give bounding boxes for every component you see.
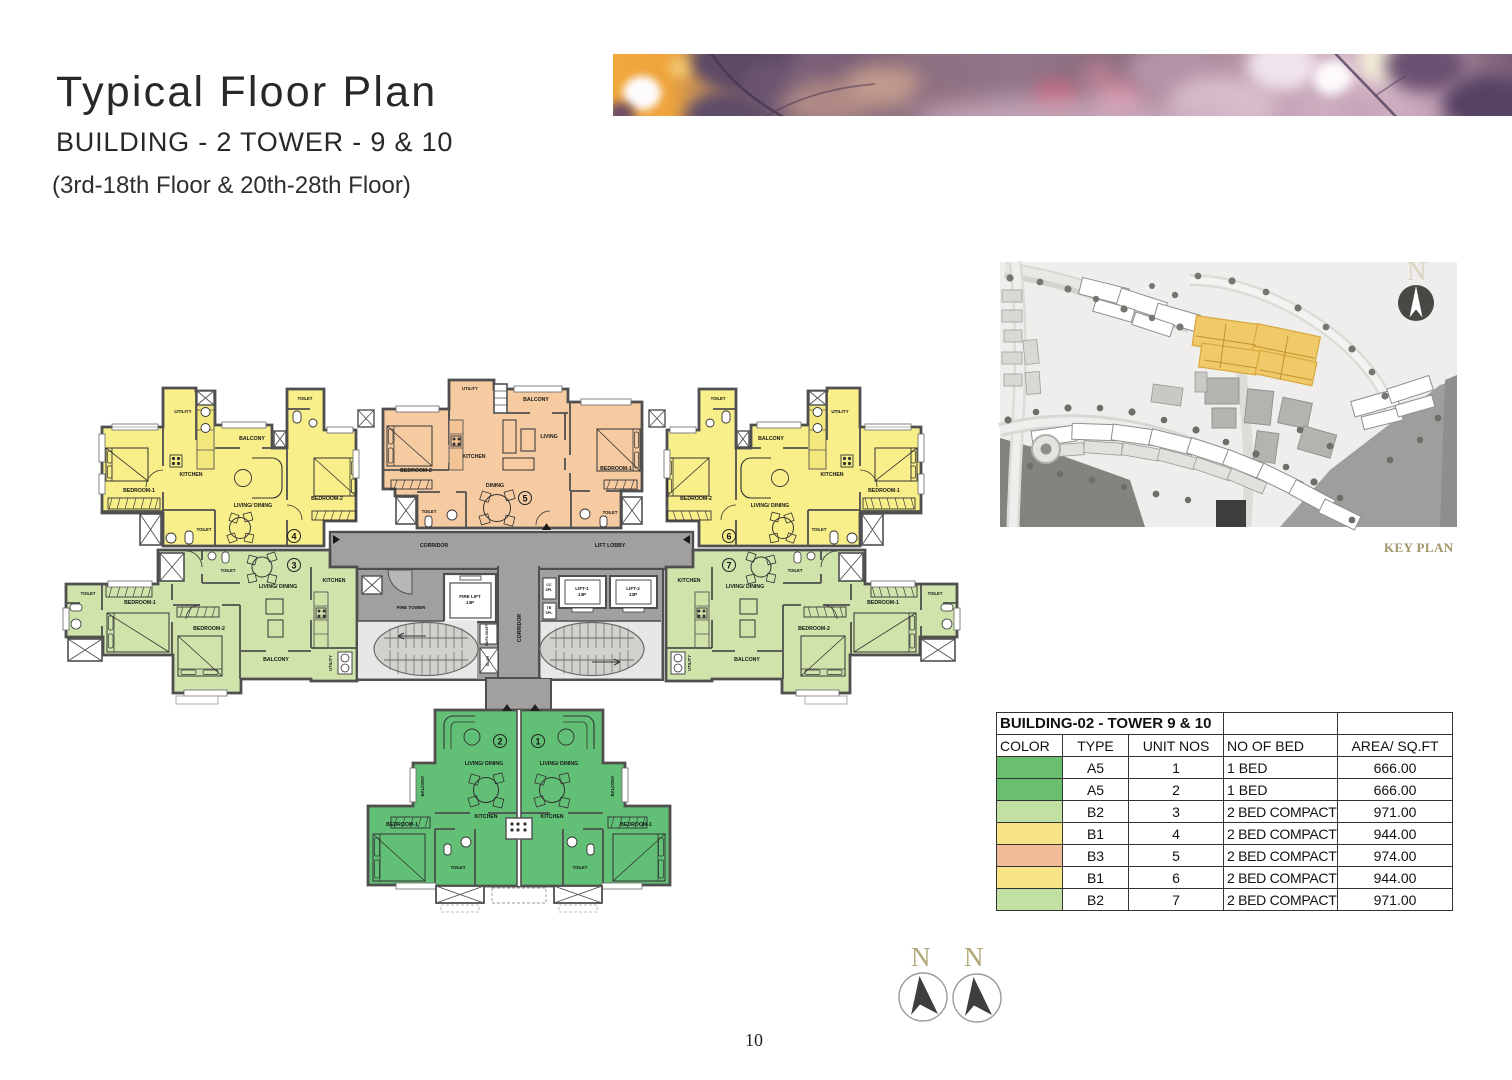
svg-text:KITCHEN: KITCHEN [322, 578, 345, 584]
svg-text:TOILET: TOILET [221, 568, 236, 573]
svg-text:BALCONY: BALCONY [734, 657, 760, 663]
svg-text:N: N [964, 942, 984, 972]
svg-text:7: 7 [726, 561, 731, 571]
svg-text:4: 4 [291, 532, 296, 542]
svg-text:CC: CC [546, 583, 552, 587]
svg-text:BEDROOM-1: BEDROOM-1 [386, 822, 418, 828]
svg-text:LIVING/ DINING: LIVING/ DINING [259, 584, 297, 590]
svg-text:KITCHEN: KITCHEN [820, 472, 843, 478]
svg-text:TOILET: TOILET [81, 591, 96, 596]
svg-text:BEDROOM-2: BEDROOM-2 [798, 626, 830, 632]
svg-text:TB: TB [547, 606, 552, 610]
svg-text:BALCONY: BALCONY [523, 397, 549, 403]
svg-text:PA/FA SHAFT: PA/FA SHAFT [485, 623, 489, 646]
svg-text:TOILET: TOILET [928, 591, 943, 596]
svg-text:13P: 13P [578, 592, 586, 597]
svg-text:KITCHEN: KITCHEN [474, 814, 497, 820]
svg-text:CORRIDOR: CORRIDOR [517, 614, 523, 642]
svg-text:BEDROOM-1: BEDROOM-1 [868, 488, 900, 494]
svg-text:3: 3 [291, 561, 296, 571]
svg-text:KITCHEN: KITCHEN [540, 814, 563, 820]
svg-text:KITCHEN: KITCHEN [179, 472, 202, 478]
svg-text:UTILITY: UTILITY [328, 655, 333, 671]
svg-text:LIVING/ DINING: LIVING/ DINING [540, 761, 578, 767]
svg-text:BALCONY: BALCONY [263, 657, 289, 663]
svg-text:KITCHEN: KITCHEN [462, 454, 485, 460]
svg-text:13P: 13P [466, 600, 474, 605]
svg-text:1: 1 [535, 737, 540, 747]
svg-text:UTILITY: UTILITY [174, 409, 191, 414]
svg-text:LIFT LOBBY: LIFT LOBBY [595, 543, 626, 549]
svg-text:TOILET: TOILET [812, 527, 827, 532]
svg-text:2: 2 [497, 737, 502, 747]
svg-text:BALCONY: BALCONY [239, 436, 265, 442]
svg-text:KEY PLAN: KEY PLAN [1384, 540, 1454, 555]
svg-text:BEDROOM-1: BEDROOM-1 [600, 466, 632, 472]
svg-text:BALCONY: BALCONY [610, 775, 615, 796]
svg-text:TOILET: TOILET [711, 396, 726, 401]
svg-text:LIFT-2: LIFT-2 [626, 586, 640, 591]
svg-text:BALCONY: BALCONY [420, 775, 425, 796]
svg-text:BEDROOM-2: BEDROOM-2 [311, 496, 343, 502]
svg-text:TOILET: TOILET [422, 509, 437, 514]
svg-text:N: N [911, 942, 931, 972]
svg-text:BEDROOM-1: BEDROOM-1 [867, 600, 899, 606]
svg-text:CORRIDOR: CORRIDOR [420, 543, 448, 549]
svg-text:5: 5 [522, 494, 527, 504]
svg-text:TOILET: TOILET [603, 510, 618, 515]
svg-text:LIVING/ DINING: LIVING/ DINING [465, 761, 503, 767]
svg-text:EL SH: EL SH [486, 655, 490, 665]
svg-text:TOILET: TOILET [298, 396, 313, 401]
svg-text:TOILET: TOILET [451, 865, 466, 870]
svg-text:SPL: SPL [546, 611, 554, 615]
svg-text:BEDROOM-1: BEDROOM-1 [124, 600, 156, 606]
svg-text:LIVING: LIVING [540, 434, 557, 440]
svg-text:TOILET: TOILET [197, 527, 212, 532]
svg-text:FIRE TOWER: FIRE TOWER [397, 605, 426, 610]
svg-text:KITCHEN: KITCHEN [677, 578, 700, 584]
svg-text:BEDROOM-1: BEDROOM-1 [620, 822, 652, 828]
svg-text:UTILITY: UTILITY [831, 409, 848, 414]
svg-text:DINING: DINING [486, 483, 504, 489]
svg-text:6: 6 [726, 532, 731, 542]
svg-text:UTILITY: UTILITY [462, 386, 478, 391]
svg-text:TOILET: TOILET [788, 568, 803, 573]
svg-text:FIRE LIFT: FIRE LIFT [459, 594, 481, 599]
svg-text:BEDROOM-2: BEDROOM-2 [400, 468, 432, 474]
svg-text:LIVING/ DINING: LIVING/ DINING [726, 584, 764, 590]
svg-text:BALCONY: BALCONY [758, 436, 784, 442]
svg-text:13P: 13P [629, 592, 637, 597]
svg-text:BEDROOM-2: BEDROOM-2 [680, 496, 712, 502]
svg-text:LIVING/ DINING: LIVING/ DINING [751, 503, 789, 509]
svg-text:LIFT-1: LIFT-1 [575, 586, 589, 591]
svg-text:BEDROOM-2: BEDROOM-2 [193, 626, 225, 632]
svg-text:SPL: SPL [546, 588, 554, 592]
svg-text:LIVING/ DINING: LIVING/ DINING [234, 503, 272, 509]
svg-text:TOILET: TOILET [573, 865, 588, 870]
svg-text:UTILITY: UTILITY [687, 655, 692, 671]
svg-text:N: N [1407, 256, 1427, 286]
svg-text:BEDROOM-1: BEDROOM-1 [123, 488, 155, 494]
